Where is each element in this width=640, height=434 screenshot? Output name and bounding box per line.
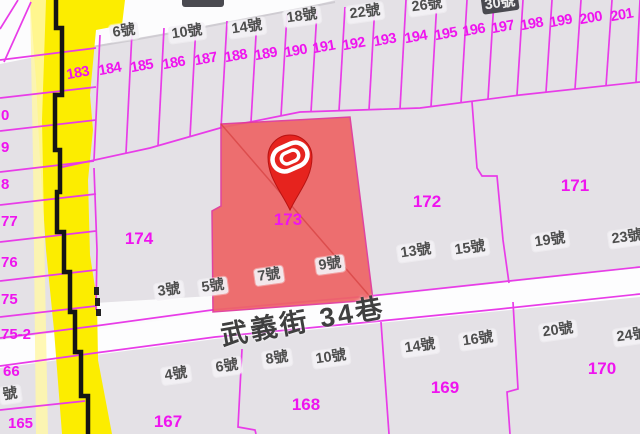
partial-house-label: [182, 0, 224, 7]
map-canvas[interactable]: [0, 0, 640, 434]
map-viewport[interactable]: 1831841851861871881891901911921931941951…: [0, 0, 640, 434]
